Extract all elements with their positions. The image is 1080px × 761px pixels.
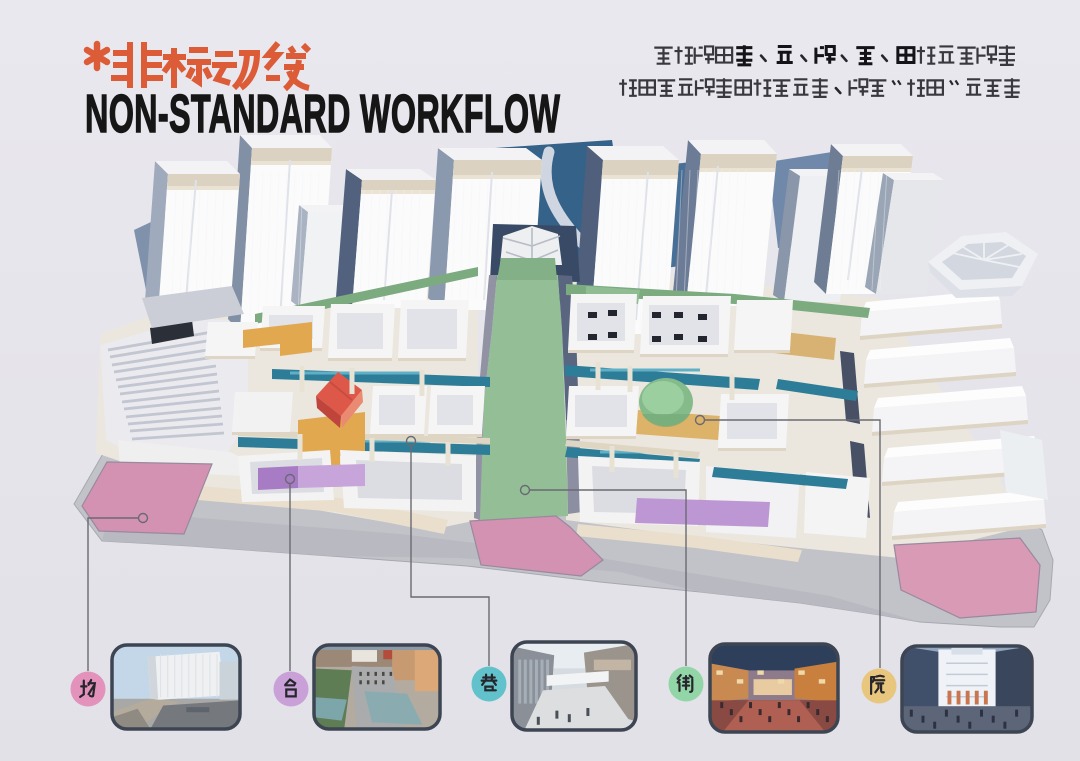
svg-text:NON-STANDARD WORKFLOW: NON-STANDARD WORKFLOW: [85, 85, 560, 144]
